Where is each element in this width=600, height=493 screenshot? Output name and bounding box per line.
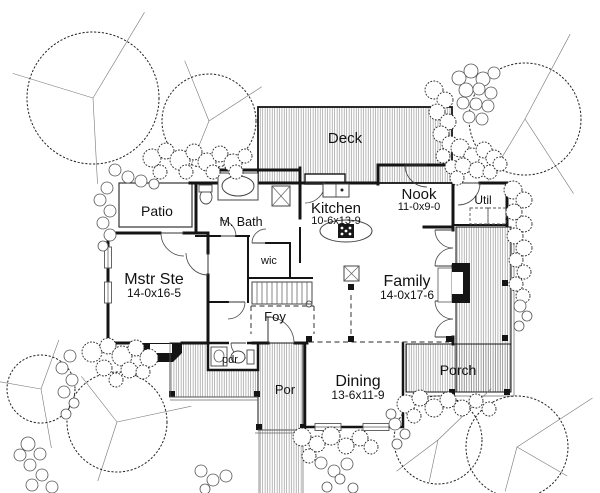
porch-post [504,389,510,395]
bush [450,171,464,185]
bush [436,149,450,163]
porch-post [254,391,260,397]
shrub-stone [66,374,78,386]
room-dims-dining: 13-6x11-9 [331,388,384,402]
tree-branch [93,98,98,184]
porch-post [348,284,354,290]
room-label-porch: Porch [440,362,477,378]
tree-branch [517,398,593,447]
toilet-tank [199,185,212,192]
hearth [438,268,452,302]
shrub-stone [207,474,219,486]
burner [349,233,352,236]
shrub-stone [220,470,232,482]
room-dims-family: 14-0x17-6 [380,288,434,302]
shrub-stone [315,457,327,469]
range-knob [341,189,344,192]
bush [96,360,112,376]
tree-branch [525,34,570,119]
shrub-stone [482,100,494,112]
shrub-stone [14,449,26,461]
washer-dryer [488,208,506,224]
shrub-stone [457,97,469,109]
shrub-stone [61,409,71,419]
shrub-stone [400,429,410,439]
shrub-stone [464,64,478,78]
shrub-stone [485,87,497,99]
shrub-stone [104,205,116,217]
bush [179,165,193,179]
door-swing [161,233,184,256]
shrub-stone [514,321,524,331]
shrub-stone [341,458,353,470]
room-dims-mstr-ste: 14-0x16-5 [127,286,181,300]
tree-branch [117,406,191,422]
bush [293,428,311,446]
shrub-stone [104,229,116,241]
tree-branch [185,61,209,121]
bush [412,390,428,406]
tree-branch [98,422,117,481]
shrub-stone [452,71,466,85]
burner [349,227,352,230]
room-dims-kitchen: 10-6x13-9 [311,215,361,227]
room-label-por: Por [275,382,296,397]
floorplan-page: DeckPatioM. BathKitchen10-6x13-9Nook11-0… [0,0,600,493]
bush [206,165,220,179]
tree-branch [0,381,41,389]
shrub-stone [473,83,485,95]
door-swing [186,253,208,275]
shrub-stone [389,418,401,430]
shrub-stone [476,113,488,125]
floor-plan-drawing: DeckPatioM. BathKitchen10-6x13-9Nook11-0… [0,0,600,493]
shrub-stone [386,409,396,419]
shrub-stone [392,439,402,449]
room-label-patio: Patio [141,203,173,219]
tree-branch [209,87,262,121]
room-label-wic: wic [260,255,277,267]
shrub-stone [24,459,36,471]
shrub-stone [488,67,500,79]
tree-branch [41,389,51,448]
bush [469,162,485,178]
bush [136,365,150,379]
firebox [452,272,463,294]
shrub-stone [200,484,210,493]
bush [364,440,378,454]
porch-post [502,280,508,286]
porch-post [502,335,508,341]
shrub-stone [470,98,482,110]
door-swing [435,230,453,248]
bush [407,409,421,423]
shrub-stone [109,164,121,176]
shrub-stone [514,300,526,312]
shrub-stone [69,398,79,408]
shrub-stone [348,483,358,493]
shrub-stone [149,179,159,189]
bush [82,342,102,362]
door-swing [228,302,245,319]
shrub-stone [522,311,532,321]
tree-branch [429,440,438,482]
shrub-stone [135,175,147,187]
bush [509,253,523,267]
door-swing [252,229,266,243]
room-label-m-bath: M. Bath [219,215,262,229]
bush [482,402,496,416]
bush [517,265,531,279]
shrub-stone [34,448,46,460]
bush [121,362,137,378]
bush [109,373,123,387]
room-dims-nook: 11-0x9-0 [398,201,441,213]
door-swing [435,301,453,319]
burner [345,230,348,233]
tree-branch [505,447,517,491]
porch-post [446,336,452,342]
bush [302,449,316,463]
shrub-stone [459,83,473,97]
shrub-stone [64,350,76,362]
door-swing [435,319,453,337]
tree-branch [93,12,145,98]
bush [469,394,483,408]
shrub-stone [335,474,345,484]
shrub-stone [97,217,109,229]
porch-post [348,336,354,342]
porch-post [306,336,312,342]
porch-post [256,424,262,430]
shrub-stone [26,479,38,491]
bush [454,400,470,416]
shrub-stone [21,437,35,451]
room-label-deck: Deck [328,130,363,147]
bush [440,392,456,408]
bush [338,438,354,454]
tree-branch [41,340,59,389]
room-label-util: Util [474,193,491,207]
tree-branch [13,73,93,98]
shrub-stone [56,362,68,374]
shrub-stone [36,469,48,481]
shrub-stone [322,482,332,492]
shrub-stone [463,111,475,123]
shrub-stone [58,386,70,398]
shrub-stone [195,465,207,477]
bush [153,165,167,179]
shrub-stone [101,182,113,194]
bush [509,277,523,291]
room-label-foy: Foy [264,309,286,324]
shrub-stone [94,194,106,206]
door-swing [435,248,453,266]
bush [140,349,158,367]
bush [238,149,252,163]
washer-dryer [470,208,488,224]
bush [229,165,243,179]
burner [341,233,344,236]
bush [493,157,507,171]
shrub-stone [122,171,134,183]
shrub-stone [46,481,58,493]
toilet-tank [247,350,254,364]
room-label-pdr: pdr [222,354,238,366]
tree-branch [517,447,567,476]
burner [341,227,344,230]
bush [322,427,340,445]
shrub-stone [98,241,108,251]
